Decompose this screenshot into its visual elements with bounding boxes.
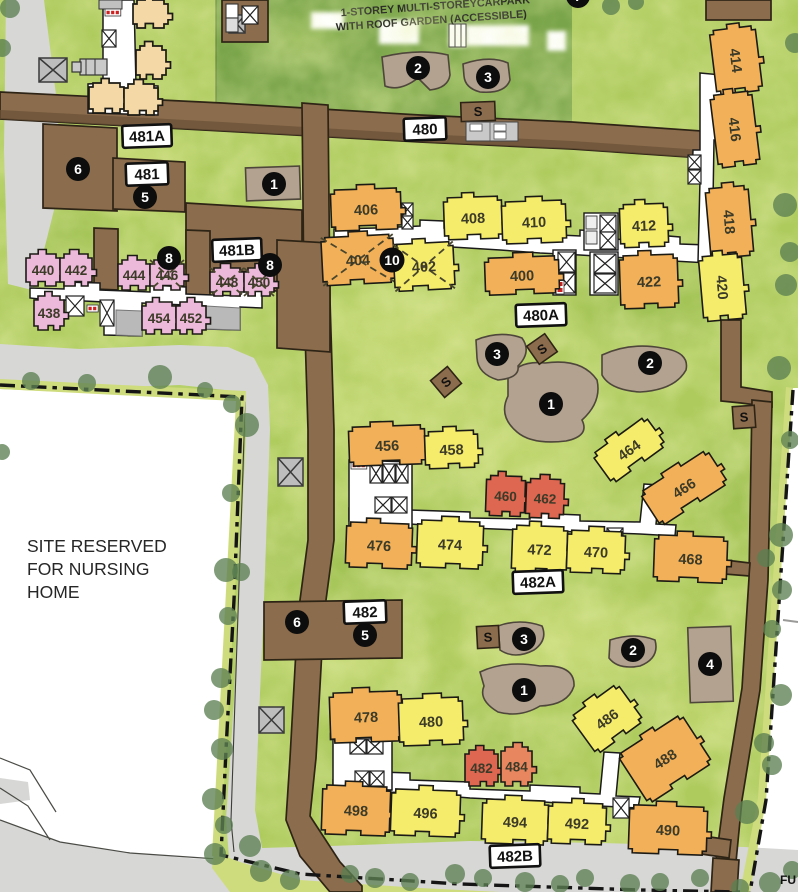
svg-text:2: 2 bbox=[629, 642, 637, 658]
svg-text:402: 402 bbox=[412, 259, 437, 276]
svg-text:468: 468 bbox=[678, 552, 703, 569]
svg-text:420: 420 bbox=[712, 275, 730, 301]
svg-text:492: 492 bbox=[565, 816, 590, 833]
svg-text:6: 6 bbox=[293, 614, 301, 630]
svg-text:S: S bbox=[483, 629, 493, 644]
svg-text:10: 10 bbox=[384, 252, 400, 268]
svg-text:SITE RESERVED: SITE RESERVED bbox=[27, 536, 167, 556]
svg-text:481A: 481A bbox=[129, 128, 166, 146]
svg-text:481B: 481B bbox=[219, 242, 256, 260]
svg-text:6: 6 bbox=[74, 161, 82, 177]
svg-text:7: 7 bbox=[574, 0, 582, 4]
svg-text:2: 2 bbox=[646, 355, 654, 371]
svg-text:450: 450 bbox=[248, 275, 271, 290]
svg-text:5: 5 bbox=[141, 189, 149, 205]
svg-text:456: 456 bbox=[375, 438, 400, 455]
svg-text:3: 3 bbox=[493, 346, 501, 362]
svg-text:460: 460 bbox=[494, 489, 517, 505]
svg-text:482: 482 bbox=[352, 604, 378, 622]
svg-text:446: 446 bbox=[156, 268, 179, 283]
svg-text:494: 494 bbox=[503, 815, 528, 832]
svg-text:5: 5 bbox=[361, 627, 369, 643]
svg-text:400: 400 bbox=[510, 268, 535, 285]
svg-text:438: 438 bbox=[38, 306, 61, 321]
svg-text:480A: 480A bbox=[523, 307, 560, 325]
svg-text:448: 448 bbox=[216, 275, 239, 290]
svg-text:470: 470 bbox=[584, 545, 609, 562]
svg-text:480: 480 bbox=[412, 121, 438, 139]
svg-text:3: 3 bbox=[484, 69, 492, 85]
svg-text:1: 1 bbox=[270, 176, 278, 192]
svg-text:FU: FU bbox=[780, 873, 796, 887]
svg-text:482: 482 bbox=[470, 761, 493, 776]
svg-text:452: 452 bbox=[180, 311, 203, 326]
svg-text:1: 1 bbox=[547, 396, 555, 412]
svg-text:480: 480 bbox=[419, 714, 444, 731]
svg-text:HOME: HOME bbox=[27, 582, 80, 602]
svg-text:482A: 482A bbox=[520, 574, 557, 592]
svg-text:404: 404 bbox=[346, 253, 371, 270]
svg-text:482B: 482B bbox=[497, 848, 534, 866]
svg-text:408: 408 bbox=[461, 211, 486, 228]
svg-text:440: 440 bbox=[32, 263, 55, 278]
svg-text:498: 498 bbox=[344, 803, 369, 820]
svg-text:481: 481 bbox=[134, 166, 160, 184]
svg-text:S: S bbox=[473, 104, 483, 119]
svg-text:4: 4 bbox=[706, 656, 714, 672]
svg-text:422: 422 bbox=[637, 274, 662, 291]
svg-text:496: 496 bbox=[413, 806, 438, 823]
svg-text:472: 472 bbox=[527, 542, 552, 559]
svg-text:414: 414 bbox=[725, 48, 744, 74]
svg-text:462: 462 bbox=[533, 491, 556, 507]
svg-text:8: 8 bbox=[165, 250, 173, 266]
svg-text:444: 444 bbox=[123, 268, 146, 283]
svg-text:478: 478 bbox=[354, 710, 379, 727]
svg-text:474: 474 bbox=[438, 537, 463, 554]
svg-text:2: 2 bbox=[414, 60, 422, 76]
svg-text:418: 418 bbox=[719, 209, 737, 235]
svg-text:454: 454 bbox=[148, 311, 171, 326]
svg-text:484: 484 bbox=[505, 759, 528, 774]
svg-text:458: 458 bbox=[439, 442, 464, 459]
svg-text:442: 442 bbox=[65, 263, 88, 278]
svg-text:406: 406 bbox=[354, 202, 379, 219]
svg-text:476: 476 bbox=[367, 538, 392, 555]
svg-text:8: 8 bbox=[266, 257, 274, 273]
svg-text:1: 1 bbox=[520, 682, 528, 698]
svg-text:S: S bbox=[739, 409, 749, 425]
svg-text:416: 416 bbox=[724, 117, 743, 143]
svg-text:FOR NURSING: FOR NURSING bbox=[27, 559, 150, 579]
svg-text:3: 3 bbox=[520, 631, 528, 647]
svg-text:490: 490 bbox=[656, 823, 681, 840]
svg-text:410: 410 bbox=[522, 215, 547, 232]
svg-text:412: 412 bbox=[632, 218, 657, 235]
